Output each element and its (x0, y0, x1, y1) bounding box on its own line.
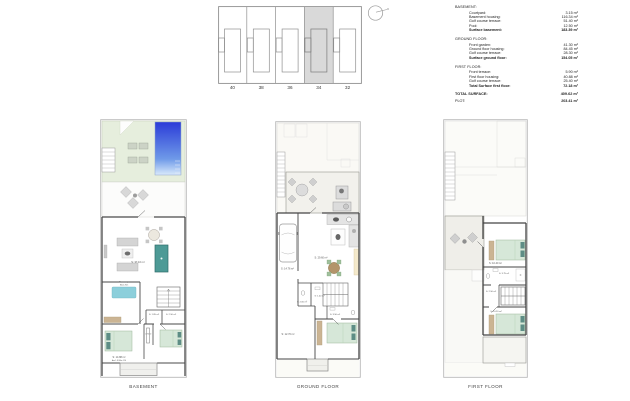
courtyard-notch (120, 363, 157, 376)
site-plot-number: 34 (304, 85, 333, 90)
room-area-label: S: 3.75 m² (499, 272, 509, 275)
room-area-label: Arm 1.50 Max 1.90 (112, 359, 126, 362)
room-area-label: S: 10.20 m² (490, 310, 502, 313)
room-area-label: S: 12.70 m² (282, 333, 295, 336)
bed-front (496, 314, 525, 334)
table-section-first: FIRST FLOOR: Front terrace:5.90 m² First… (455, 65, 578, 89)
room-area-label: S: 14.76 m² (281, 268, 294, 271)
exterior-stairs (277, 152, 285, 197)
area-row-value: 12.50 m² (563, 24, 578, 28)
rug (112, 287, 136, 298)
plot-label: PLOT: (455, 99, 465, 104)
tv-unit (104, 245, 107, 258)
ground-floor-plan: S: 14.76 m² S: 29.60 m² S: 1.40 m² S: 2.… (275, 121, 361, 378)
interior-stairs (323, 283, 348, 306)
room-area-label: S: 3.50 m² (330, 313, 340, 316)
table-row: Golf course terrace:25.40 m² (455, 79, 578, 83)
wardrobe-front (489, 315, 494, 334)
ground-floor-plan-title: GROUND FLOOR (273, 384, 363, 389)
room-area-label: S: 2.50 m² (486, 290, 496, 293)
basement-plan: S: 37.10 m² Almacenaje 80x1.70m S: 1.85 … (100, 119, 187, 378)
room-area-label: S: 2.50 m² (166, 313, 176, 316)
room-area-label: S: 37.10 m² (131, 260, 145, 264)
interior-stairs (501, 287, 525, 305)
area-row-label: Golf course terrace: (469, 51, 501, 55)
bed-back (496, 240, 525, 260)
wardrobe (317, 321, 322, 345)
terrace-stairs (102, 148, 115, 172)
room-area-label: Almacenaje (119, 281, 129, 284)
area-total-label: Total Surface first floor: (469, 84, 511, 89)
plot-value: 203.41 m² (561, 99, 578, 104)
sink (347, 217, 352, 222)
table-total-row: Total Surface first floor:72.18 m² (455, 84, 578, 89)
table-row: Golf course terrace:28.30 m² (455, 51, 578, 55)
front-terrace (483, 337, 526, 367)
architectural-sheet: 40 38 36 34 32 BASEMENT: Courtyard:3.15 … (0, 0, 630, 401)
table-total-row: Surface basement:183.39 m² (455, 28, 578, 33)
side-void (445, 270, 484, 363)
area-summary-table: BASEMENT: Courtyard:3.15 m² Basement hou… (455, 5, 578, 104)
porch (307, 359, 328, 371)
exterior-stairs (445, 152, 455, 200)
area-row-label: Pool: (469, 24, 477, 28)
site-plot-numbers: 40 38 36 34 32 (218, 85, 362, 90)
room-area-label: S: 14.88 m² (113, 356, 126, 359)
room-area-label: S: 10.40 m² (489, 262, 502, 265)
site-plot-34-highlight (304, 7, 333, 83)
area-row-value: 25.40 m² (563, 79, 578, 83)
dining-set (327, 260, 341, 276)
area-total-value: 154.05 m² (561, 56, 578, 61)
roof-void (445, 121, 526, 216)
area-row-value: 28.30 m² (563, 51, 578, 55)
table-total-row: Surface ground floor:154.05 m² (455, 56, 578, 61)
room-area-label: 80x1.70m (120, 284, 129, 286)
room-area-label: S: 29.60 m² (315, 257, 328, 260)
step-notch (472, 270, 484, 281)
table-row: Pool:12.50 m² (455, 24, 578, 28)
area-total-label: Surface basement: (469, 28, 502, 33)
area-total-value: 72.18 m² (563, 84, 578, 89)
room-area-label: S: 1.85 m² (149, 313, 159, 316)
table-section-ground: GROUND FLOOR: Front garden:41.30 m² Grou… (455, 37, 578, 61)
area-total-label: Surface ground floor: (469, 56, 507, 61)
area-row-label: Golf course terrace: (469, 79, 501, 83)
first-floor-plan: S: 10.40 m² S: 3.75 m² S: 2.50 m² S: 10.… (443, 119, 528, 378)
north-arrow-icon (366, 2, 392, 24)
cooktop (333, 217, 339, 221)
car (278, 224, 298, 262)
pool-table (155, 245, 168, 272)
corridor-door (147, 328, 150, 343)
room-area-label: S: 1.40 m² (314, 295, 324, 298)
bed-second (160, 330, 182, 347)
wardrobe-back (489, 241, 494, 260)
room-area-label: S: 2.65 m² (297, 301, 307, 304)
area-total-value: 183.39 m² (561, 28, 578, 33)
grand-total-label: TOTAL SURFACE: (455, 92, 488, 99)
bed (327, 323, 357, 343)
pool (155, 122, 181, 175)
grand-total-value: 409.62 m² (561, 92, 578, 99)
basement-plan-title: BASEMENT (99, 384, 189, 389)
site-plot-number: 36 (276, 85, 305, 90)
wardrobe (104, 317, 121, 323)
room-area-label: 0.75 m² (145, 333, 152, 336)
site-plot-number: 38 (247, 85, 276, 90)
basement-stairs (157, 287, 180, 307)
site-plan (218, 6, 362, 84)
table-grand-total-row: TOTAL SURFACE:409.62 m² (455, 92, 578, 99)
bed-main (105, 331, 132, 351)
table-plot-row: PLOT:203.41 m² (455, 99, 578, 104)
first-floor-plan-title: FIRST FLOOR (441, 384, 531, 389)
site-plot-number: 40 (218, 85, 247, 90)
cabinets (354, 249, 359, 275)
site-plot-number: 32 (333, 85, 362, 90)
table-section-basement: BASEMENT: Courtyard:3.15 m² Basement hou… (455, 5, 578, 33)
